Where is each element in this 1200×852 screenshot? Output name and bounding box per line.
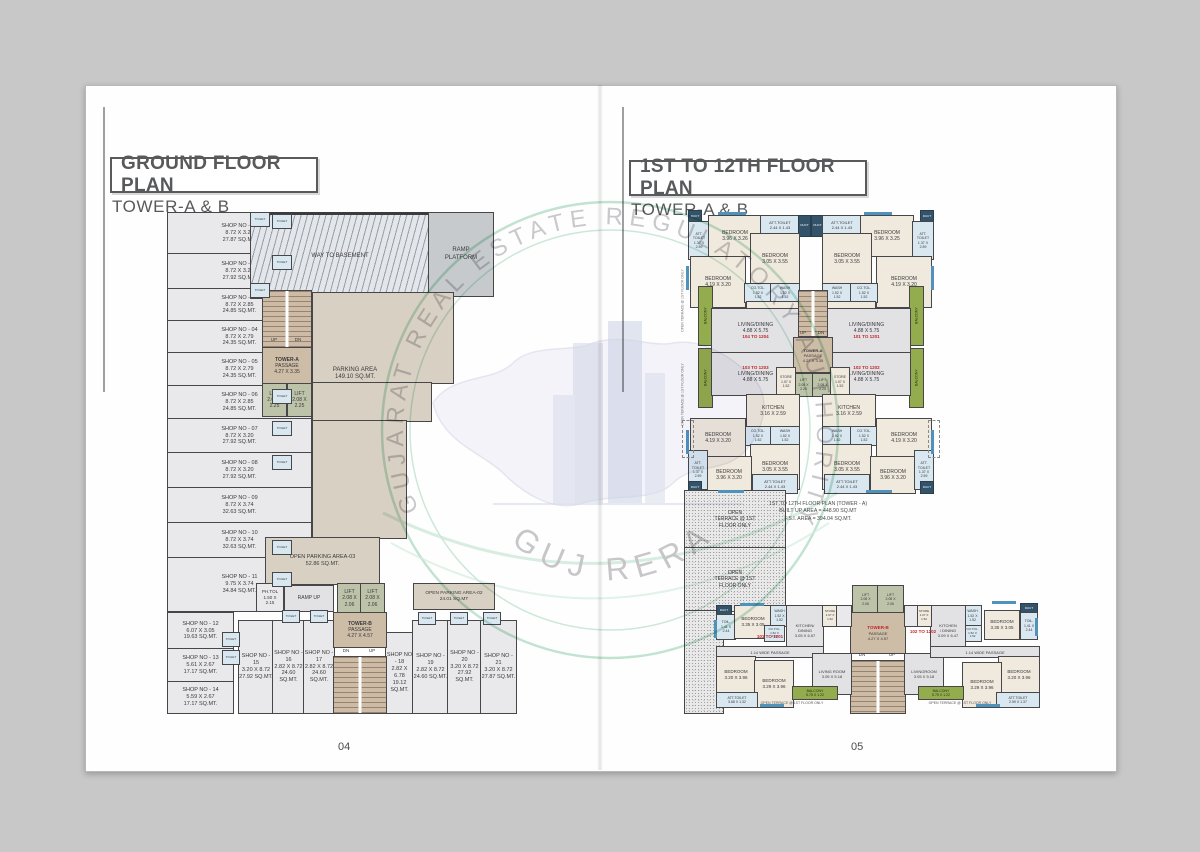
shop-14: SHOP NO - 14 5.59 X 2.67 17.17 SQ.MT. <box>167 681 234 714</box>
page-gutter <box>597 85 603 770</box>
balcony: BALCONY <box>909 286 924 346</box>
att-toilet: ATT.TOILET 2.44 X 1.43 <box>822 215 862 235</box>
toilet-box: TOILET <box>483 612 501 625</box>
balcony: BALCONY <box>909 348 924 408</box>
store-room: STORE 1.07 X 1.52 <box>916 605 932 627</box>
living-dining-label: LIVING/DINING 4.88 X 5.75 <box>738 371 773 384</box>
toilet-box: TOILET <box>250 212 270 227</box>
balcony: BALCONY 5.75 X 1.22 <box>792 686 838 700</box>
att-toilet: ATT. TOILET 1.37 X 2.59 <box>688 221 710 260</box>
toilet-box: TOILET <box>450 612 468 625</box>
common-toilet: CO.TOL. 1.52 X 1.52 <box>850 283 878 303</box>
toilet-box: TOILET <box>272 389 292 404</box>
parking-area <box>312 420 407 539</box>
toilet-box: TOILET <box>272 214 292 229</box>
bedroom: BEDROOM 3.96 X 3.20 <box>870 456 916 494</box>
ph-toilet: PH.TOL 1.50 X 2.15 <box>256 583 284 612</box>
tower-b-passage: TOWER-BPASSAGE 4.27 X 4.57 <box>333 612 387 648</box>
stairs-up-label: UP <box>796 330 810 335</box>
unit-range-101: 101 TO 1201 <box>853 334 879 340</box>
stairs-dn-label: DN <box>852 652 872 657</box>
tower-a-passage-dims: PASSAGE 4.27 X 3.35 <box>803 353 823 363</box>
toilet-box: TOILET <box>250 283 270 298</box>
tower-b-passage-dims: PASSAGE 4.27 X 4.57 <box>347 627 373 640</box>
shop-19: SHOP NO - 19 2.82 X 8.72 24.60 SQ.MT. <box>412 620 449 714</box>
shop-21: SHOP NO - 21 3.20 X 8.72 27.87 SQ.MT. <box>480 620 517 714</box>
stairs-dn-label: DN <box>336 648 356 653</box>
terrace-railing-dashed <box>928 420 940 458</box>
toilet-box: TOILET <box>222 650 240 665</box>
toilet-box: TOILET <box>272 255 292 270</box>
att-toilet: ATT.TOILET 2.44 X 1.43 <box>760 215 800 235</box>
unit-range-b102: 102 TO 1202 <box>900 628 946 636</box>
living-dining-label: LIVING/DINING 4.88 X 5.75 <box>849 371 884 384</box>
toilet-box: TOILET <box>272 572 292 587</box>
tower-b-passage-dims: PASSAGE 4.27 X 4.57 <box>868 631 888 641</box>
parking-area <box>312 382 432 422</box>
open-terrace-area: OPEN TERRACE @ 1ST FLOOR ONLY <box>684 547 786 612</box>
balcony: BALCONY 5.75 X 1.22 <box>918 686 964 700</box>
wash-area: WASH 1.52 X 1.52 <box>770 283 800 303</box>
window-accent <box>992 601 1016 604</box>
lobby-box <box>904 605 918 627</box>
shop-17: SHOP NO - 17 2.82 X 8.72 24.60 SQ.MT. <box>303 620 335 714</box>
floor-plan-area-note: 1ST TO 12TH FLOOR PLAN (TOWER - A) BUILT… <box>756 501 880 525</box>
shop-15: SHOP NO - 15 3.20 X 8.72 27.92 SQ.MT. <box>238 620 274 714</box>
stairs-up-label: UP <box>882 652 902 657</box>
duct-box: DUCT <box>920 481 934 494</box>
toilet-box: TOILET <box>272 421 292 436</box>
page-title-first-floor: 1ST TO 12TH FLOOR PLAN <box>629 160 867 196</box>
kitchen: KITCHEN 3.16 X 2.59 <box>746 394 800 428</box>
unit-range-104: 104 TO 1204 <box>742 334 768 340</box>
window-accent <box>976 704 1000 707</box>
living-dining-unit-101: LIVING/DINING 4.88 X 5.75101 TO 1201 <box>822 308 911 354</box>
window-accent <box>931 430 934 454</box>
bedroom: BEDROOM 3.35 X 3.05 <box>984 610 1020 640</box>
window-accent <box>740 603 764 606</box>
shop-18: SHOP NO - 18 2.82 X 6.78 19.12 SQ.MT. <box>385 632 414 714</box>
toilet-box: TOILET <box>272 540 292 555</box>
shop-09: SHOP NO - 09 8.72 X 3.74 32.63 SQ.MT. <box>167 487 312 524</box>
att-toilet: ATT. TOILET 1.37 X 2.59 <box>912 221 934 260</box>
tower-b-staircase <box>333 656 387 714</box>
living-dining-unit-104: LIVING/DINING 4.88 X 5.75104 TO 1204 <box>711 308 800 354</box>
bedroom: BEDROOM 3.20 X 3.96 <box>716 656 756 694</box>
window-accent <box>718 490 744 493</box>
parking-area-label: PARKING AREA 149.10 SQ.MT. <box>315 366 395 382</box>
living-dining-label: LIVING/DINING 4.88 X 5.75 <box>849 322 884 335</box>
toilet-box: TOILET <box>272 455 292 470</box>
deco-line-right <box>622 107 624 392</box>
toilet-box: TOILET <box>222 632 240 647</box>
lift: LIFT 2.08 X 2.06 <box>877 585 904 614</box>
open-parking-area-02: OPEN PARKING AREA-02 24.01 SQ.MT <box>413 583 495 610</box>
toilet: TOIL. 1.41 X 2.44 <box>716 614 736 640</box>
shop-16: SHOP NO - 16 2.82 X 8.72 24.60 SQ.MT. <box>272 620 305 714</box>
toilet-box: TOILET <box>310 610 328 623</box>
att-toilet: ATT.TOILET 2.44 X 1.43 <box>824 474 870 494</box>
open-terrace-vertical-note: OPEN TERRACE @ 1ST FLOOR ONLY <box>679 258 686 343</box>
stairs-dn-label: DN <box>814 330 828 335</box>
bedroom: BEDROOM 3.05 X 3.55 <box>750 233 800 285</box>
window-accent <box>760 704 784 707</box>
window-accent <box>931 266 934 290</box>
stairs-up-label: UP <box>264 337 284 342</box>
window-accent <box>718 212 746 215</box>
window-accent <box>1035 618 1038 636</box>
kitchen: KITCHEN 3.16 X 2.59 <box>822 394 876 428</box>
page-number-right: 05 <box>851 741 863 753</box>
bedroom: BEDROOM 3.05 X 3.55 <box>822 233 872 285</box>
wash-area: WASH 1.52 X 1.52 <box>770 426 800 446</box>
shop-20: SHOP NO - 20 3.20 X 8.72 27.92 SQ.MT. <box>447 620 482 714</box>
tower-a-passage-dims: PASSAGE 4.27 X 3.35 <box>274 363 300 376</box>
lobby-box <box>836 605 852 627</box>
ramp-up: RAMP UP <box>284 585 334 612</box>
store-room: STORE 1.07 X 1.52 <box>776 367 796 397</box>
lift: LIFT 2.08 X 2.06 <box>360 583 385 614</box>
lift: LIFT 2.08 X 2.06 <box>337 583 362 614</box>
stair-rail <box>877 661 880 713</box>
lift: LIFT 2.08 X 2.06 <box>852 585 879 614</box>
tower-a-passage: TOWER-APASSAGE 4.27 X 3.35 <box>262 347 312 385</box>
window-accent <box>866 490 892 493</box>
common-toilet: CO.TOL. 1.52 X 1.52 <box>744 283 772 303</box>
brochure-spread: { "left_page": { "title": "GROUND FLOOR … <box>0 0 1200 852</box>
bedroom: BEDROOM 3.20 X 3.96 <box>998 656 1040 694</box>
stair-rail <box>359 657 362 713</box>
tower-b-passage: TOWER-BPASSAGE 4.27 X 4.57 <box>850 612 906 654</box>
tower-b-staircase <box>850 660 906 714</box>
window-accent <box>686 430 689 454</box>
wash-area: WASH 1.52 X 1.52 <box>822 426 852 446</box>
stairs-up-label: UP <box>362 648 382 653</box>
store-room: STORE 1.07 X 1.52 <box>830 367 850 397</box>
toilet-box: TOILET <box>418 612 436 625</box>
toilet-box: TOILET <box>282 610 300 623</box>
page-number-left: 04 <box>338 741 350 753</box>
deco-line-left <box>103 107 105 392</box>
common-toilet: CO.TOL. 1.52 X 1.52 <box>744 426 772 446</box>
stairs-dn-label: DN <box>288 337 308 342</box>
window-accent <box>686 266 689 290</box>
tower-a-passage-upper: TOWER-APASSAGE 4.27 X 3.35 <box>793 337 833 373</box>
window-accent <box>864 212 892 215</box>
page-title-ground-floor: GROUND FLOOR PLAN <box>110 157 318 193</box>
bedroom: BEDROOM 3.96 X 3.20 <box>706 456 752 494</box>
ramp-platform: RAMP PLATFORM <box>428 212 494 297</box>
common-toilet: CO.TOL. 1.52 X 1.52 <box>850 426 878 446</box>
window-accent <box>714 620 717 638</box>
unit-range-b101: 101 TO 1201 <box>748 633 792 641</box>
living-dining-label: LIVING/DINING 4.88 X 5.75 <box>738 322 773 335</box>
